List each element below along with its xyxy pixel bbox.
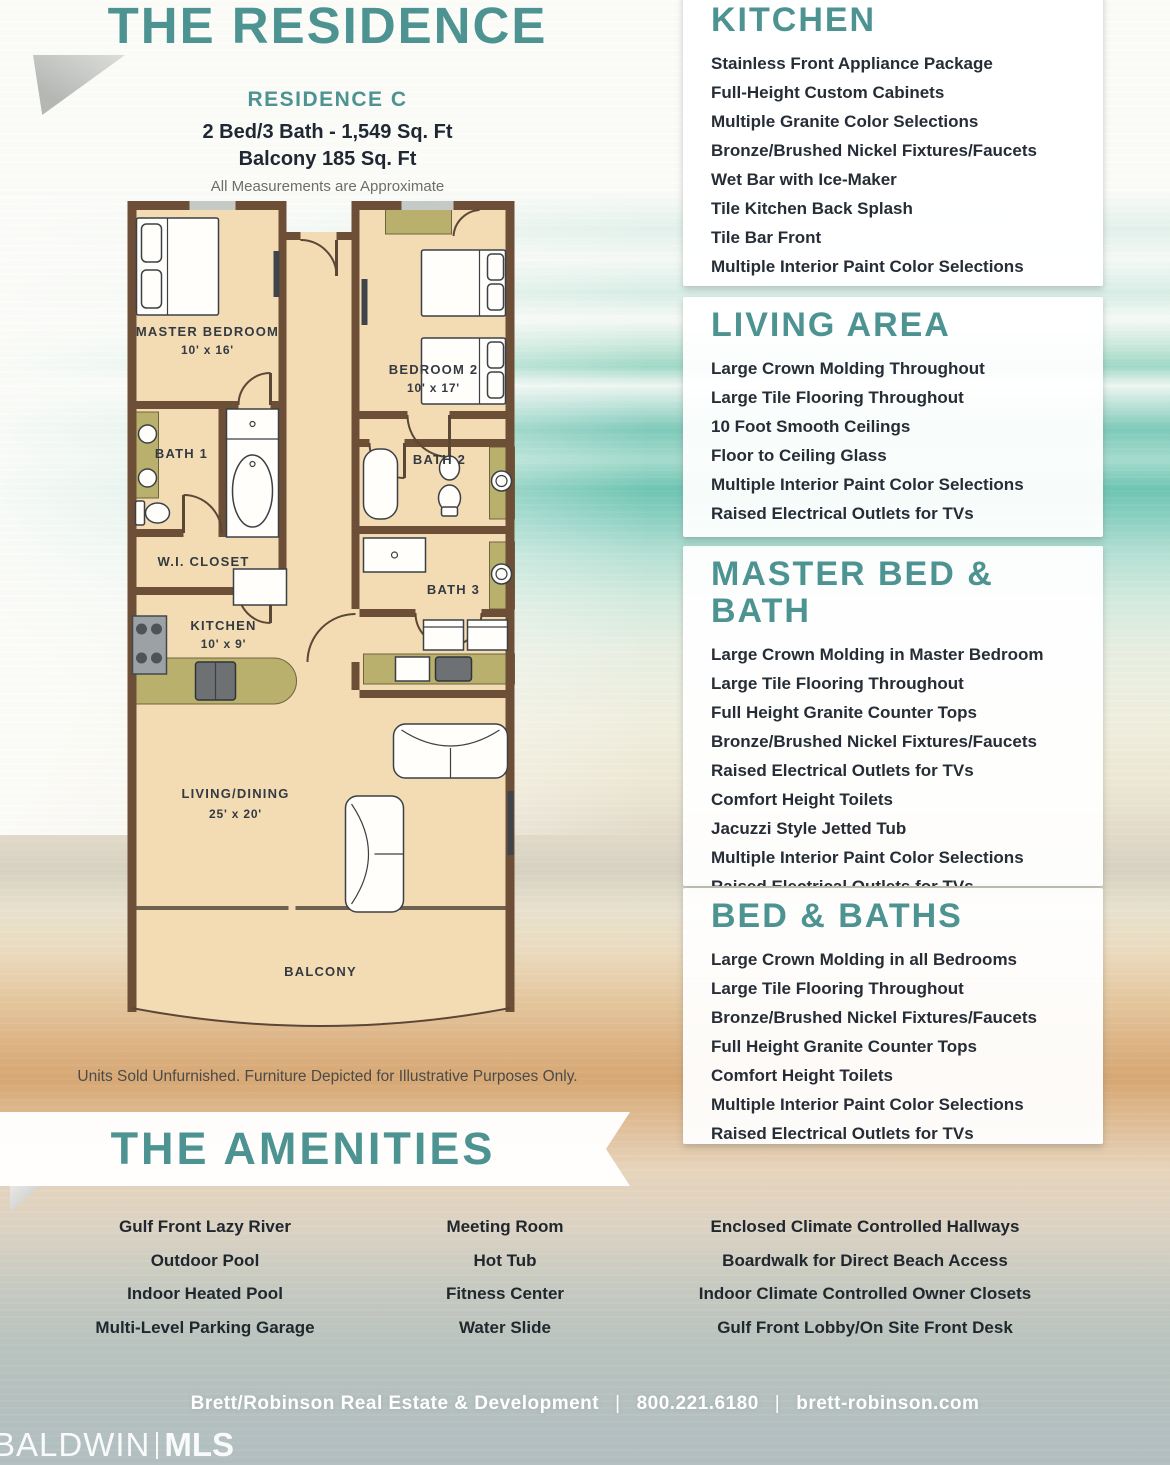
feature-item: Stainless Front Appliance Package — [711, 49, 1093, 78]
amenities-column-1: Gulf Front Lazy RiverOutdoor PoolIndoor … — [55, 1210, 355, 1344]
amenity-item: Outdoor Pool — [55, 1244, 355, 1278]
feature-item: Multiple Interior Paint Color Selections — [711, 1090, 1093, 1119]
feature-item: Raised Electrical Outlets for TVs — [711, 499, 1093, 528]
feature-item: Large Crown Molding in all Bedrooms — [711, 945, 1093, 974]
bath1-label: BATH 1 — [155, 446, 208, 461]
bed-baths-card-title: BED & BATHS — [711, 898, 1093, 935]
feature-item: Bronze/Brushed Nickel Fixtures/Faucets — [711, 136, 1093, 165]
kitchen-dims: 10' x 9' — [201, 637, 246, 651]
amenity-item: Boardwalk for Direct Beach Access — [635, 1244, 1095, 1278]
master-bed-bath-feature-list: Large Crown Molding in Master BedroomLar… — [711, 640, 1093, 886]
feature-card-living-area: LIVING AREA Large Crown Molding Througho… — [683, 297, 1103, 537]
bedroom2-closet-shelf — [386, 208, 452, 234]
feature-item: Large Tile Flooring Throughout — [711, 974, 1093, 1003]
amenity-item: Enclosed Climate Controlled Hallways — [635, 1210, 1095, 1244]
feature-item: Full-Height Custom Cabinets — [711, 78, 1093, 107]
feature-item: Raised Electrical Outlets for TVs — [711, 756, 1093, 785]
feature-item: Tile Bar Front — [711, 223, 1093, 252]
flyer-page: THE RESIDENCE RESIDENCE C 2 Bed/3 Bath -… — [0, 0, 1170, 1465]
living-area-feature-list: Large Crown Molding ThroughoutLarge Tile… — [711, 354, 1093, 528]
feature-item: Floor to Ceiling Glass — [711, 441, 1093, 470]
feature-item: Large Crown Molding Throughout — [711, 354, 1093, 383]
feature-item: Raised Electrical Outlets for TVs — [711, 872, 1093, 886]
master-bed-bath-card-title: MASTER BED & BATH — [711, 556, 1093, 630]
amenity-item: Fitness Center — [395, 1277, 615, 1311]
baldwin-mls-watermark: BALDWIN MLS — [0, 1426, 234, 1464]
balcony-label: BALCONY — [284, 964, 357, 979]
kitchen-feature-list: Stainless Front Appliance PackageFull-He… — [711, 49, 1093, 281]
residence-header: THE RESIDENCE RESIDENCE C 2 Bed/3 Bath -… — [0, 0, 655, 195]
master-window — [190, 201, 236, 210]
bath3-label: BATH 3 — [427, 582, 480, 597]
feature-item: Full Height Granite Counter Tops — [711, 1032, 1093, 1061]
amenity-item: Indoor Climate Controlled Owner Closets — [635, 1277, 1095, 1311]
company-name: Brett/Robinson Real Estate & Development — [191, 1393, 600, 1414]
amenities-column-2: Meeting RoomHot TubFitness CenterWater S… — [395, 1210, 615, 1344]
feature-item: Large Tile Flooring Throughout — [711, 669, 1093, 698]
feature-item: Multiple Granite Color Selections — [711, 107, 1093, 136]
feature-card-bed-baths: BED & BATHS Large Crown Molding in all B… — [683, 888, 1103, 1144]
bath2-label: BATH 2 — [413, 452, 466, 467]
feature-item: Bronze/Brushed Nickel Fixtures/Faucets — [711, 1003, 1093, 1032]
residence-name: RESIDENCE C — [0, 88, 655, 112]
feature-item: Tile Kitchen Back Splash — [711, 194, 1093, 223]
bedroom2-dims: 10' x 17' — [407, 381, 460, 395]
website-url: brett-robinson.com — [796, 1393, 979, 1414]
amenity-item: Gulf Front Lobby/On Site Front Desk — [635, 1311, 1095, 1345]
feature-item: Multiple Interior Paint Color Selections — [711, 252, 1093, 281]
bedroom2-window — [402, 201, 454, 210]
disclaimer-text: Units Sold Unfurnished. Furniture Depict… — [0, 1068, 655, 1086]
feature-item: Full Height Granite Counter Tops — [711, 698, 1093, 727]
wic-label: W.I. CLOSET — [158, 554, 250, 569]
master-bedroom-label: MASTER BEDROOM — [136, 324, 279, 339]
measurements-note: All Measurements are Approximate — [0, 178, 655, 195]
page-title: THE RESIDENCE — [0, 0, 655, 51]
living-area-card-title: LIVING AREA — [711, 307, 1093, 344]
amenities-column-3: Enclosed Climate Controlled HallwaysBoar… — [635, 1210, 1095, 1344]
bed-baths-feature-list: Large Crown Molding in all BedroomsLarge… — [711, 945, 1093, 1144]
phone-number: 800.221.6180 — [637, 1393, 759, 1414]
footer-separator: | — [775, 1393, 780, 1414]
residence-balcony-size: Balcony 185 Sq. Ft — [0, 148, 655, 171]
kitchen-card-title: KITCHEN — [711, 2, 1093, 39]
feature-item: Comfort Height Toilets — [711, 785, 1093, 814]
amenity-item: Water Slide — [395, 1311, 615, 1345]
feature-item: Comfort Height Toilets — [711, 1061, 1093, 1090]
amenities-title: THE AMENITIES — [0, 1112, 630, 1186]
amenities-banner: THE AMENITIES — [0, 1112, 630, 1186]
master-bed-icon — [137, 218, 219, 315]
feature-card-master-bed-bath: MASTER BED & BATH Large Crown Molding in… — [683, 546, 1103, 886]
feature-item: Bronze/Brushed Nickel Fixtures/Faucets — [711, 727, 1093, 756]
feature-item: Multiple Interior Paint Color Selections — [711, 843, 1093, 872]
amenity-item: Gulf Front Lazy River — [55, 1210, 355, 1244]
living-dining-dims: 25' x 20' — [209, 807, 262, 821]
feature-item: Large Tile Flooring Throughout — [711, 383, 1093, 412]
feature-item: Multiple Interior Paint Color Selections — [711, 470, 1093, 499]
feature-item: Raised Electrical Outlets for TVs — [711, 1119, 1093, 1144]
contact-footer: Brett/Robinson Real Estate & Development… — [0, 1393, 1170, 1415]
watermark-mls: MLS — [164, 1426, 234, 1464]
living-dining-label: LIVING/DINING — [181, 786, 289, 801]
residence-specs: 2 Bed/3 Bath - 1,549 Sq. Ft — [0, 121, 655, 144]
feature-item: Large Crown Molding in Master Bedroom — [711, 640, 1093, 669]
amenity-item: Multi-Level Parking Garage — [55, 1311, 355, 1345]
floor-plan: MASTER BEDROOM 10' x 16' BEDROOM 2 10' x… — [123, 196, 519, 1048]
feature-card-kitchen: KITCHEN Stainless Front Appliance Packag… — [683, 0, 1103, 286]
balcony-sliding-doors — [137, 906, 506, 910]
amenity-item: Meeting Room — [395, 1210, 615, 1244]
master-bedroom-dims: 10' x 16' — [181, 343, 234, 357]
footer-separator: | — [615, 1393, 620, 1414]
kitchen-label: KITCHEN — [190, 618, 256, 633]
amenity-item: Hot Tub — [395, 1244, 615, 1278]
amenity-item: Indoor Heated Pool — [55, 1277, 355, 1311]
feature-item: 10 Foot Smooth Ceilings — [711, 412, 1093, 441]
watermark-divider — [156, 1432, 158, 1459]
watermark-baldwin: BALDWIN — [0, 1426, 150, 1464]
feature-item: Wet Bar with Ice-Maker — [711, 165, 1093, 194]
feature-item: Jacuzzi Style Jetted Tub — [711, 814, 1093, 843]
bedroom2-label: BEDROOM 2 — [389, 362, 479, 377]
